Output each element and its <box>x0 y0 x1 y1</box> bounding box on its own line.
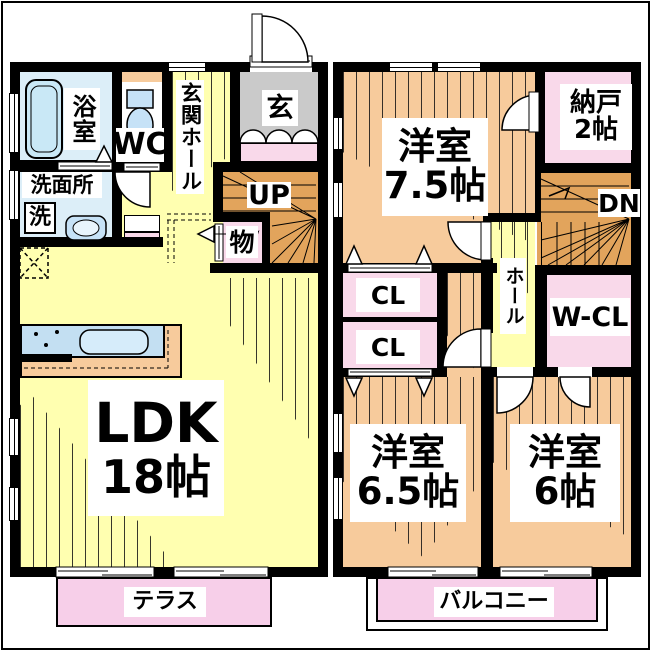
window <box>9 170 19 220</box>
door-opening <box>558 367 592 377</box>
label-storeroom: 納戸 2帖 <box>560 84 632 150</box>
wall <box>262 222 270 263</box>
stair-hall-line <box>541 222 542 265</box>
wall <box>230 72 240 162</box>
wall <box>437 263 447 377</box>
window <box>9 93 19 153</box>
wall <box>10 567 328 577</box>
wall <box>483 213 541 222</box>
label-terrace: テラス <box>124 587 206 617</box>
wall <box>333 368 447 377</box>
wall <box>318 62 328 577</box>
label-bedroom-6-5-name: 洋室 <box>371 434 445 473</box>
window <box>333 413 343 453</box>
wall <box>535 173 541 213</box>
label-storeroom-size: 2帖 <box>574 117 618 144</box>
wall <box>481 367 493 567</box>
window <box>389 62 433 72</box>
label-storeroom-name: 納戸 <box>570 90 622 117</box>
stairs-down <box>537 173 631 265</box>
window <box>9 418 19 456</box>
label-bedroom-6-name: 洋室 <box>528 434 602 473</box>
wc-counter <box>122 72 162 82</box>
label-entrance: 玄 <box>262 90 298 126</box>
window <box>333 182 343 218</box>
wall <box>333 62 641 72</box>
wall <box>535 265 631 275</box>
label-bedroom-7-5: 洋室 7.5帖 <box>382 118 488 216</box>
label-bedroom-7-5-size: 7.5帖 <box>384 167 487 206</box>
label-bedroom-6-size: 6帖 <box>534 473 597 512</box>
wall <box>213 212 270 222</box>
window <box>9 487 19 521</box>
window <box>437 62 481 72</box>
wall <box>535 163 641 173</box>
wall <box>333 263 497 273</box>
kitchen-counter <box>20 324 165 358</box>
label-wc: WC <box>116 128 164 162</box>
label-bedroom-6: 洋室 6帖 <box>510 424 620 522</box>
label-ldk-name: LDK <box>94 395 217 453</box>
label-hall-2f: ホール <box>500 258 526 334</box>
label-walk-in-closet: W-CL <box>550 298 630 336</box>
wall <box>210 263 318 273</box>
wall <box>535 62 545 163</box>
shoe-cabinet <box>240 143 318 162</box>
label-closet-1: CL <box>356 278 420 312</box>
wall <box>333 567 641 577</box>
window <box>333 477 343 520</box>
wall <box>631 62 641 577</box>
label-ldk: LDK 18帖 <box>88 380 224 516</box>
label-bedroom-7-5-name: 洋室 <box>398 128 472 167</box>
label-washroom: 洗面所 <box>22 172 102 198</box>
door-opening <box>497 367 533 377</box>
floorplan-canvas: 浴室 WC 洗面所 洗 玄関ホール 玄 UP 物 LDK 18帖 テラス 洋室 … <box>0 0 651 651</box>
label-washer: 洗 <box>24 202 56 234</box>
window <box>168 62 206 72</box>
label-bedroom-6-5-size: 6.5帖 <box>357 473 460 512</box>
label-ldk-size: 18帖 <box>101 453 211 501</box>
wall <box>213 172 223 212</box>
wall <box>343 317 437 322</box>
window <box>333 117 343 150</box>
label-entrance-hall: 玄関ホール <box>176 80 204 194</box>
wall <box>535 275 547 377</box>
entrance-opening <box>250 62 312 72</box>
label-closet-2: CL <box>356 330 420 364</box>
wall <box>20 237 163 247</box>
label-bathroom: 浴室 <box>64 88 100 150</box>
label-stairs-up: UP <box>247 182 291 208</box>
label-stairs-down: DN <box>598 189 640 217</box>
label-balcony: バルコニー <box>434 587 554 617</box>
label-storage: 物 <box>226 226 258 258</box>
wall <box>112 162 122 237</box>
hall-cabinet-top <box>124 215 160 232</box>
wall <box>213 162 318 172</box>
label-bedroom-6-5: 洋室 6.5帖 <box>350 424 466 522</box>
